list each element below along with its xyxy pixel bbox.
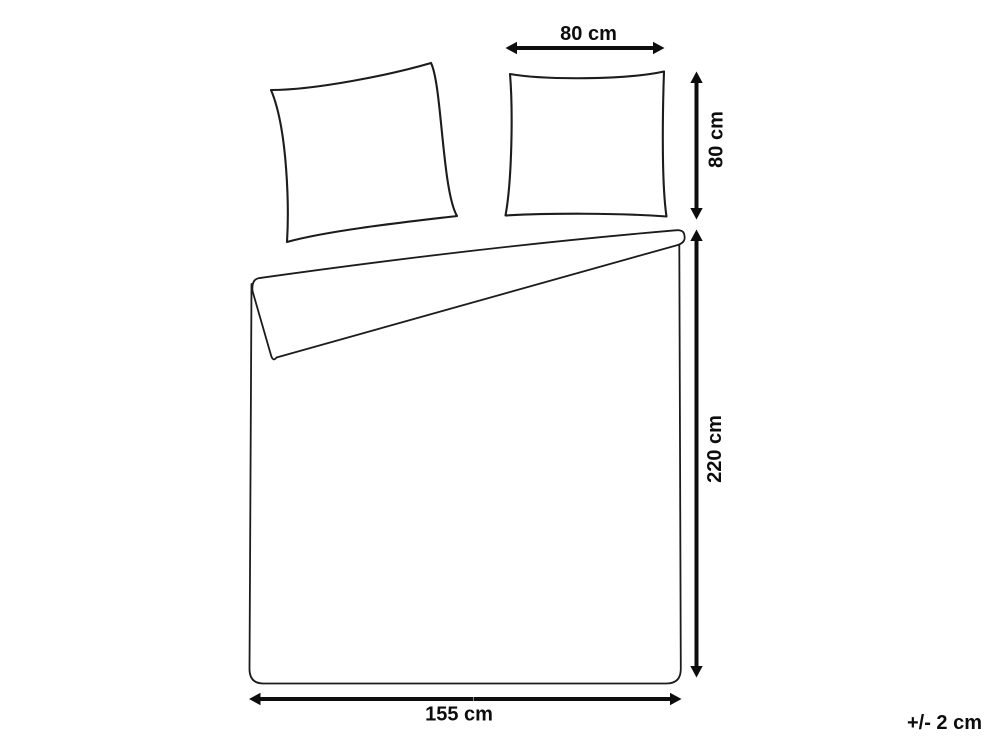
svg-text:80 cm: 80 cm bbox=[560, 23, 617, 45]
svg-text:155 cm: 155 cm bbox=[425, 704, 493, 726]
svg-text:+/- 2 cm: +/- 2 cm bbox=[907, 712, 982, 734]
svg-text:220 cm: 220 cm bbox=[704, 415, 726, 483]
svg-text:80 cm: 80 cm bbox=[706, 111, 728, 168]
